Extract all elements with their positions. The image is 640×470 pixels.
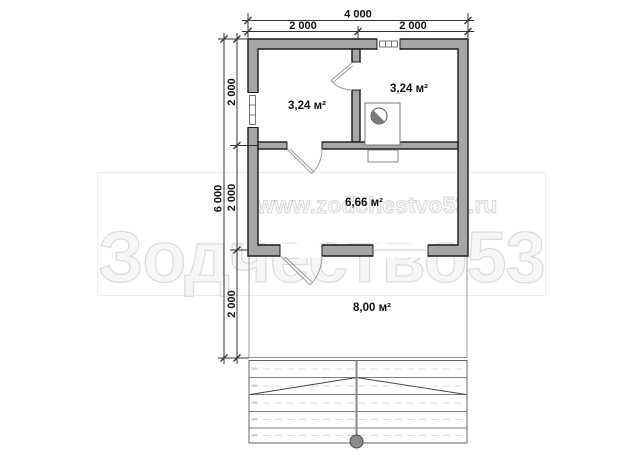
opening-terrace-right — [373, 244, 428, 258]
room-main-area-label: 6,66 м² — [345, 197, 383, 209]
window-top-icon — [377, 38, 400, 50]
roof-post-icon — [350, 435, 363, 448]
dim-left-seg-1: 2 000 — [226, 78, 238, 106]
dim-top-left: 2 000 — [289, 20, 317, 32]
door-swing-sauna-icon — [331, 63, 353, 91]
door-swing-terrace-icon — [281, 256, 322, 285]
doorway-terrace — [280, 244, 322, 258]
dim-left-seg-2: 2 000 — [226, 184, 238, 212]
window-left-icon — [247, 93, 259, 128]
dim-top-total: 4 000 — [344, 9, 372, 21]
blueprint-canvas: Зодчество53 www.zodchestvo53.ru — [0, 0, 640, 470]
doorway-hall — [287, 141, 322, 150]
door-swing-hall-icon — [288, 149, 323, 174]
terrace-area-label: 8,00 м² — [353, 302, 391, 314]
porch-steps-roof-projection — [249, 361, 467, 449]
stove-icon — [365, 103, 400, 162]
room-top-right-area-label: 3,24 м² — [390, 83, 428, 95]
dim-left-total: 6 000 — [213, 185, 225, 213]
room-top-left-area-label: 3,24 м² — [288, 100, 326, 112]
dim-top-right: 2 000 — [399, 20, 427, 32]
dim-left-seg-3: 2 000 — [226, 290, 238, 318]
floor-plan: 4 000 2 000 2 000 6 000 2 000 2 000 2 00… — [0, 0, 640, 470]
